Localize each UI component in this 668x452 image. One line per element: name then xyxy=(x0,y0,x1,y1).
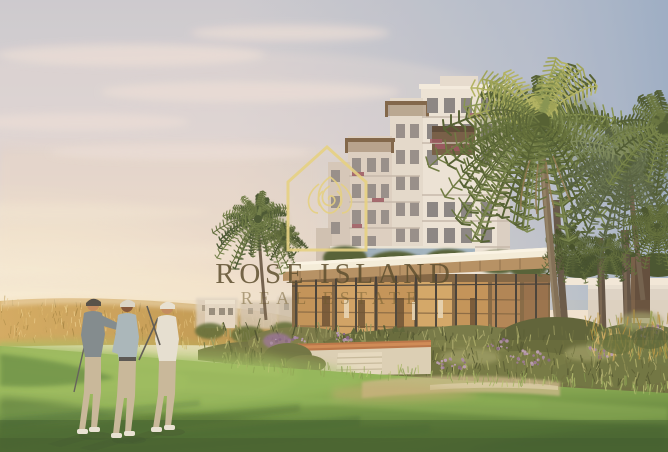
svg-text:ROSE ISLAND: ROSE ISLAND xyxy=(215,258,454,290)
svg-text:REAL ESTATE: REAL ESTATE xyxy=(241,288,424,308)
